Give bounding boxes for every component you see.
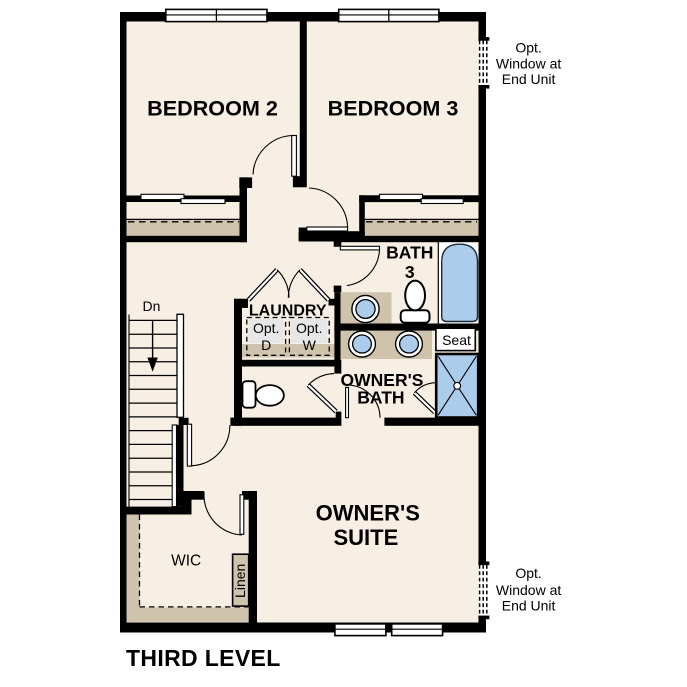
svg-text:SUITE: SUITE [334, 525, 399, 550]
svg-text:Opt.: Opt. [253, 320, 279, 336]
svg-text:Linen: Linen [232, 564, 248, 598]
svg-text:Opt.: Opt. [515, 565, 541, 581]
svg-text:THIRD LEVEL: THIRD LEVEL [126, 645, 281, 671]
svg-text:D: D [261, 337, 271, 353]
svg-text:Dn: Dn [143, 298, 161, 314]
svg-text:OWNER'S: OWNER'S [316, 500, 420, 525]
svg-text:BATH: BATH [357, 387, 404, 407]
svg-text:Opt.: Opt. [515, 40, 541, 56]
svg-text:LAUNDRY: LAUNDRY [249, 302, 327, 319]
svg-text:BEDROOM 2: BEDROOM 2 [147, 96, 278, 121]
svg-text:Seat: Seat [442, 332, 471, 348]
svg-text:End Unit: End Unit [502, 71, 556, 87]
svg-text:Opt.: Opt. [296, 320, 322, 336]
svg-text:3: 3 [405, 262, 415, 282]
svg-text:End Unit: End Unit [502, 598, 556, 614]
svg-text:W: W [303, 337, 317, 353]
svg-text:WIC: WIC [171, 552, 201, 569]
svg-text:BATH: BATH [386, 243, 433, 263]
svg-text:Window at: Window at [496, 582, 561, 598]
svg-text:Window at: Window at [496, 56, 561, 72]
svg-text:BEDROOM 3: BEDROOM 3 [328, 96, 459, 121]
